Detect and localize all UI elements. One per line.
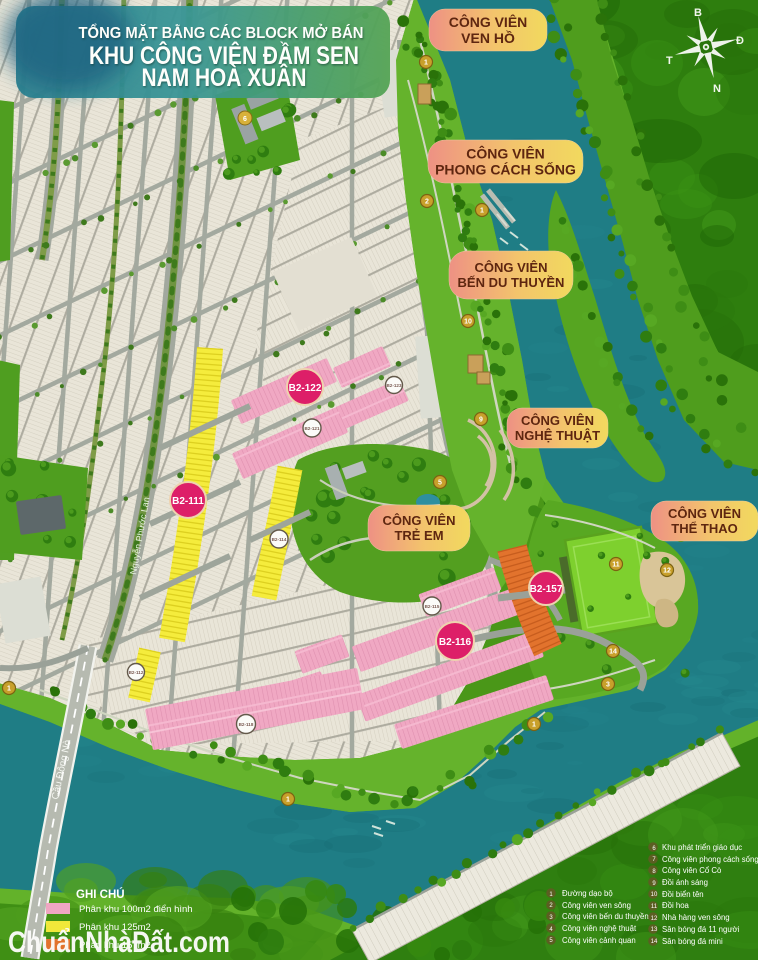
svg-text:2: 2 <box>425 198 429 205</box>
svg-text:B2-123: B2-123 <box>386 383 402 388</box>
svg-text:B2-122: B2-122 <box>289 383 322 394</box>
svg-text:14: 14 <box>651 939 658 945</box>
svg-text:9: 9 <box>479 416 483 423</box>
svg-text:1: 1 <box>532 721 536 728</box>
svg-text:5: 5 <box>438 479 442 486</box>
svg-text:B2-111: B2-111 <box>172 496 204 507</box>
svg-text:13: 13 <box>651 927 658 933</box>
svg-text:Đồi ánh sáng: Đồi ánh sáng <box>662 878 708 887</box>
svg-text:NAM HOÀ XUÂN: NAM HOÀ XUÂN <box>142 62 307 92</box>
svg-text:B2-112: B2-112 <box>129 670 144 675</box>
svg-text:BẾN DU THUYỀN: BẾN DU THUYỀN <box>458 275 565 290</box>
svg-text:CÔNG VIÊN: CÔNG VIÊN <box>668 506 741 521</box>
svg-text:B: B <box>694 7 702 19</box>
svg-text:3: 3 <box>606 681 610 688</box>
svg-text:6: 6 <box>243 116 247 123</box>
svg-text:Công viên Cổ Cò: Công viên Cổ Cò <box>662 866 722 875</box>
svg-text:CÔNG VIÊN: CÔNG VIÊN <box>521 413 594 428</box>
svg-text:14: 14 <box>609 648 617 655</box>
svg-text:B2-116: B2-116 <box>439 637 472 648</box>
svg-text:TỔNG MẶT BẰNG CÁC BLOCK MỞ BÁN: TỔNG MẶT BẰNG CÁC BLOCK MỞ BÁN <box>79 24 364 42</box>
svg-text:VEN HỒ: VEN HỒ <box>461 29 515 46</box>
svg-text:Nhà hàng ven sông: Nhà hàng ven sông <box>662 913 730 922</box>
svg-text:Sân bóng đá mini: Sân bóng đá mini <box>662 937 723 946</box>
svg-text:CÔNG VIÊN: CÔNG VIÊN <box>466 144 545 161</box>
svg-text:Đồi biển tên: Đồi biển tên <box>662 890 704 899</box>
svg-text:B2-157: B2-157 <box>530 584 563 595</box>
svg-text:NGHỆ THUẬT: NGHỆ THUẬT <box>515 428 600 443</box>
svg-text:B2-118: B2-118 <box>239 722 254 727</box>
svg-text:11: 11 <box>651 904 658 910</box>
svg-text:GHI CHÚ: GHI CHÚ <box>76 888 125 901</box>
svg-text:1: 1 <box>424 59 428 66</box>
svg-text:Đ: Đ <box>736 35 744 47</box>
svg-text:CÔNG VIÊN: CÔNG VIÊN <box>475 260 548 275</box>
svg-text:Khu phát triển giáo dục: Khu phát triển giáo dục <box>662 843 742 852</box>
svg-text:B2-114: B2-114 <box>272 537 287 542</box>
svg-text:12: 12 <box>651 916 658 922</box>
svg-text:Sân bóng đá 11 người: Sân bóng đá 11 người <box>662 925 740 934</box>
svg-text:10: 10 <box>651 892 658 898</box>
svg-text:1: 1 <box>7 685 11 692</box>
svg-text:CÔNG VIÊN: CÔNG VIÊN <box>383 513 456 528</box>
svg-text:10: 10 <box>464 318 472 325</box>
svg-text:11: 11 <box>612 561 620 568</box>
svg-text:Công viên ven sông: Công viên ven sông <box>562 901 631 910</box>
svg-text:TRẺ EM: TRẺ EM <box>394 528 443 543</box>
svg-text:B2-121: B2-121 <box>304 426 320 431</box>
svg-text:Công viên bến du thuyền: Công viên bến du thuyền <box>562 912 649 921</box>
svg-text:N: N <box>713 83 721 95</box>
svg-text:PHONG CÁCH SỐNG: PHONG CÁCH SỐNG <box>435 160 576 177</box>
svg-text:1: 1 <box>286 796 290 803</box>
svg-text:Đường dạo bộ: Đường dạo bộ <box>562 889 613 898</box>
svg-text:T: T <box>666 55 673 67</box>
svg-text:Công viên cảnh quan: Công viên cảnh quan <box>562 936 636 945</box>
svg-text:ChuẩnNhàĐất.com: ChuẩnNhàĐất.com <box>8 926 230 959</box>
svg-text:12: 12 <box>663 567 671 574</box>
svg-text:Phân khu 100m2 điển hình: Phân khu 100m2 điển hình <box>79 904 193 915</box>
svg-text:1: 1 <box>480 207 484 214</box>
svg-text:Đồi hoa: Đồi hoa <box>662 901 690 910</box>
svg-text:Công viên phong cách sống: Công viên phong cách sống <box>662 855 758 864</box>
svg-text:CÔNG VIÊN: CÔNG VIÊN <box>449 13 528 30</box>
svg-text:B2-115: B2-115 <box>425 604 440 609</box>
svg-text:THỂ THAO: THỂ THAO <box>671 521 737 536</box>
svg-text:Công viên nghệ thuật: Công viên nghệ thuật <box>562 924 637 933</box>
